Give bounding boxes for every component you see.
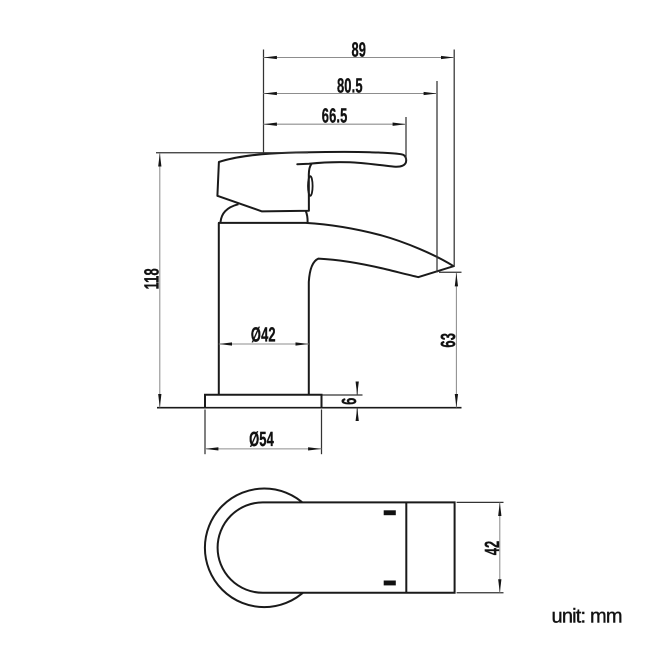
- svg-text:89: 89: [351, 39, 366, 62]
- svg-text:118: 118: [141, 268, 164, 289]
- svg-text:42: 42: [481, 541, 504, 556]
- svg-text:Ø42: Ø42: [251, 324, 276, 347]
- svg-text:80.5: 80.5: [337, 74, 363, 97]
- svg-text:Ø54: Ø54: [249, 428, 274, 451]
- svg-text:unit: mm: unit: mm: [552, 606, 622, 628]
- svg-text:66.5: 66.5: [322, 104, 348, 127]
- svg-text:6: 6: [338, 398, 361, 405]
- svg-text:63: 63: [437, 333, 460, 348]
